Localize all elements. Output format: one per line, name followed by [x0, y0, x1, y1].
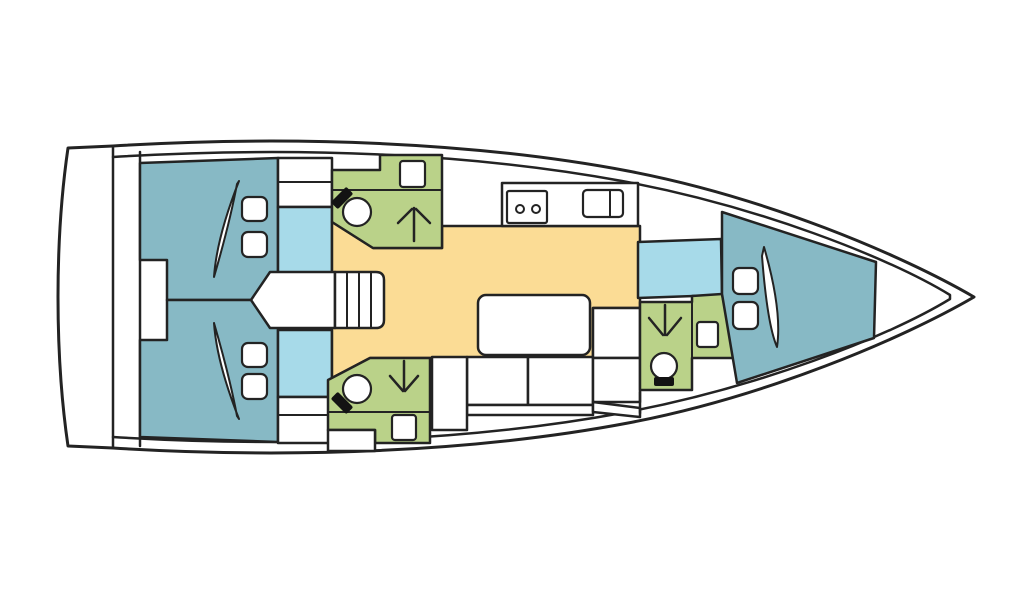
berth-pillow [733, 302, 758, 329]
yacht-deck-plan [0, 0, 1024, 600]
berth-pillow [242, 343, 267, 367]
toilet-bowl [651, 353, 677, 379]
stove-burner [532, 205, 540, 213]
corridor-forward [638, 239, 722, 298]
settee-seat [467, 357, 528, 405]
berth-pillow [242, 374, 267, 399]
galley-sink [583, 190, 623, 217]
corridor-port [278, 207, 332, 273]
corridor-starboard [278, 330, 332, 397]
settee-backrest [467, 405, 593, 415]
toilet-bowl [343, 198, 371, 226]
nav-seat [593, 308, 640, 358]
yacht-layout-screenshot [0, 0, 1024, 600]
washbasin [400, 161, 425, 187]
storage-locker [432, 357, 467, 430]
saloon-table [478, 295, 590, 355]
berth-pillow [733, 268, 758, 294]
toilet-bowl [343, 375, 371, 403]
nav-seat [593, 358, 640, 402]
settee-seat [528, 357, 593, 405]
storage-locker [328, 430, 375, 451]
washbasin [392, 415, 416, 440]
wardrobe-starboard [278, 397, 332, 443]
stove [507, 191, 547, 223]
engine-compartment [251, 272, 335, 328]
washbasin [697, 322, 718, 347]
toilet-seat [654, 377, 674, 386]
berth-pillow [242, 197, 267, 221]
stove-burner [516, 205, 524, 213]
berth-pillow [242, 232, 267, 257]
